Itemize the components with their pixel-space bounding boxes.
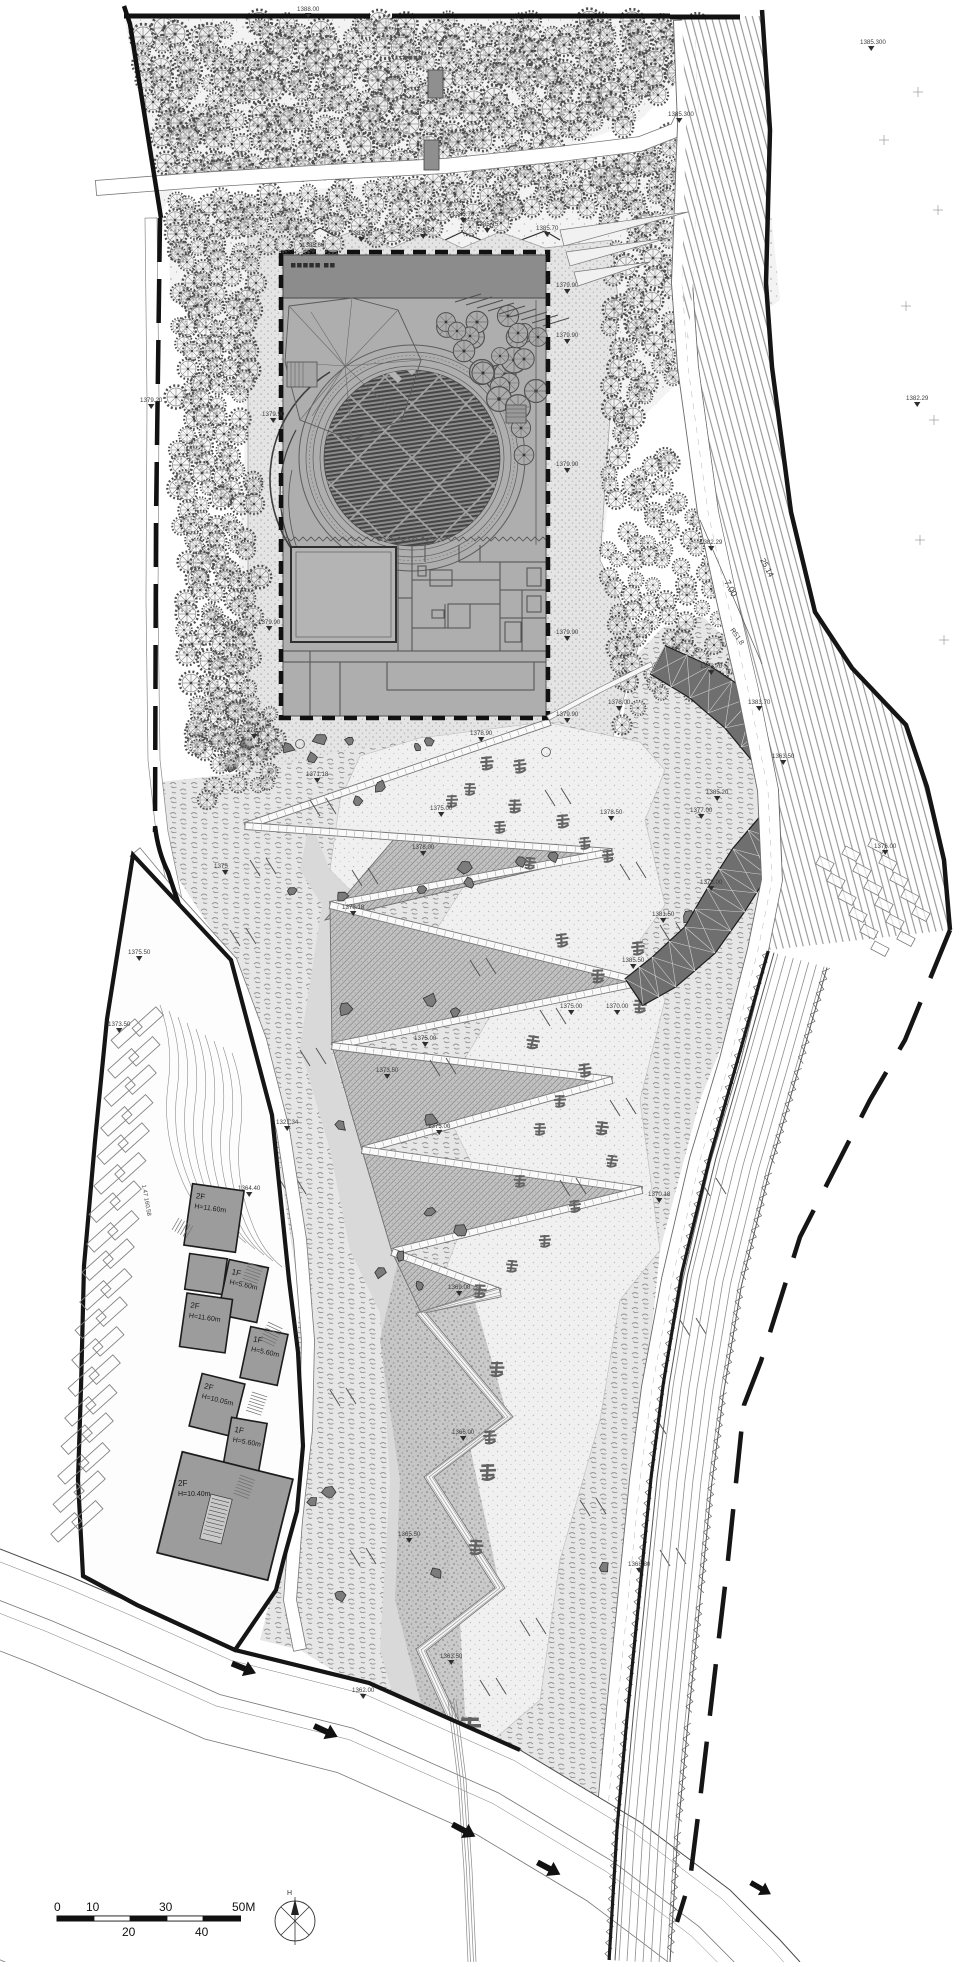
svg-text:1373.50: 1373.50	[108, 1021, 131, 1028]
svg-text:1379.90: 1379.90	[556, 282, 579, 289]
svg-text:1363.50: 1363.50	[440, 1653, 463, 1660]
svg-text:1385.60: 1385.60	[302, 242, 325, 249]
svg-text:1385.70: 1385.70	[536, 225, 559, 232]
svg-text:1F: 1F	[234, 1425, 245, 1436]
svg-text:1371.18: 1371.18	[306, 771, 329, 778]
svg-text:2F: 2F	[190, 1301, 201, 1311]
svg-text:H=10.40m: H=10.40m	[178, 1491, 211, 1498]
svg-text:1375: 1375	[214, 863, 228, 870]
svg-text:1387.05: 1387.05	[350, 230, 373, 237]
svg-text:1F: 1F	[231, 1267, 242, 1278]
svg-text:2F: 2F	[178, 1479, 187, 1488]
svg-text:1379.20: 1379.20	[140, 397, 163, 404]
svg-text:40: 40	[195, 1925, 209, 1939]
svg-text:1375.00: 1375.00	[428, 1123, 451, 1130]
svg-text:50M: 50M	[232, 1900, 255, 1914]
svg-text:1368.80: 1368.80	[628, 1561, 651, 1568]
svg-text:1378.00: 1378.00	[608, 699, 631, 706]
svg-text:1385.300: 1385.300	[668, 111, 694, 118]
svg-text:1378.90: 1378.90	[470, 730, 493, 737]
svg-text:1385.50: 1385.50	[622, 957, 645, 964]
svg-text:1381.50: 1381.50	[652, 911, 675, 918]
svg-text:1378.18: 1378.18	[342, 904, 365, 911]
svg-text:1386.50: 1386.50	[412, 227, 435, 234]
svg-text:1375.00: 1375.00	[560, 1003, 583, 1010]
svg-text:1370.00: 1370.00	[606, 1003, 629, 1010]
svg-text:1375.00: 1375.00	[414, 1035, 437, 1042]
svg-text:10: 10	[86, 1900, 100, 1914]
svg-text:1378.20: 1378.20	[243, 727, 266, 734]
svg-text:1362.00: 1362.00	[352, 1687, 375, 1694]
svg-text:1379.90: 1379.90	[556, 332, 579, 339]
svg-text:1379.90: 1379.90	[556, 629, 579, 636]
svg-text:1376.00: 1376.00	[874, 843, 897, 850]
svg-text:1385.300: 1385.300	[860, 39, 886, 46]
svg-text:1385.75: 1385.75	[476, 221, 499, 228]
svg-text:1379.90: 1379.90	[556, 711, 579, 718]
svg-text:1379.90: 1379.90	[258, 619, 281, 626]
svg-text:30: 30	[159, 1900, 173, 1914]
svg-text:1373.50: 1373.50	[376, 1067, 399, 1074]
svg-text:1378.50: 1378.50	[600, 809, 623, 816]
svg-text:1375.00: 1375.00	[430, 805, 453, 812]
svg-text:1378.00: 1378.00	[700, 879, 723, 886]
svg-text:1379.90: 1379.90	[556, 461, 579, 468]
svg-text:1365.50: 1365.50	[398, 1531, 421, 1538]
svg-text:0: 0	[54, 1900, 61, 1914]
svg-text:1F: 1F	[252, 1335, 263, 1346]
svg-text:20: 20	[122, 1925, 136, 1939]
svg-text:1366.00: 1366.00	[452, 1429, 475, 1436]
svg-text:H: H	[287, 1890, 292, 1897]
svg-text:1363.50: 1363.50	[772, 753, 795, 760]
svg-text:1379.90: 1379.90	[262, 411, 285, 418]
svg-text:1378.00: 1378.00	[412, 844, 435, 851]
svg-text:1377.00: 1377.00	[690, 807, 713, 814]
svg-text:1383.70: 1383.70	[748, 699, 771, 706]
svg-text:1369.00: 1369.00	[448, 1284, 471, 1291]
svg-text:1321.34: 1321.34	[276, 1119, 299, 1126]
svg-text:1370.18: 1370.18	[648, 1191, 671, 1198]
svg-text:1375.50: 1375.50	[128, 949, 151, 956]
svg-text:1382.29: 1382.29	[906, 395, 929, 402]
svg-text:1382.29: 1382.29	[700, 539, 723, 546]
svg-text:1385.70: 1385.70	[452, 211, 475, 218]
svg-text:1383.70: 1383.70	[700, 663, 723, 670]
svg-text:1364.40: 1364.40	[238, 1185, 261, 1192]
svg-text:1385.20: 1385.20	[706, 789, 729, 796]
svg-text:1388.00: 1388.00	[297, 6, 320, 13]
svg-text:2F: 2F	[195, 1191, 206, 1201]
